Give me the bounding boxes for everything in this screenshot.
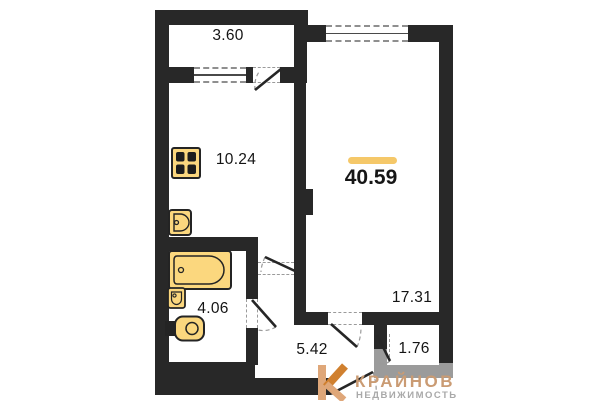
wall-living-bottom-left [294, 312, 328, 325]
total-area-accent-bar [348, 157, 397, 164]
total-area-label: 40.59 [345, 166, 398, 190]
living-room-area-label: 17.31 [392, 289, 432, 307]
balcony-door-opening [253, 67, 280, 83]
hallway-area-label: 5.42 [296, 341, 327, 359]
kitchen-sink-icon [168, 209, 192, 236]
bathroom-area-label: 4.06 [197, 300, 228, 318]
wall-bottom-left-block [155, 362, 255, 395]
wall-living-top-left [307, 25, 326, 42]
wall-living-bottom-right [362, 312, 447, 325]
brand-logo-icon [317, 361, 351, 401]
brand-tagline: НЕДВИЖИМОСТЬ [356, 390, 458, 401]
balcony-area-label: 3.60 [212, 27, 243, 45]
wall-left [155, 10, 169, 367]
wall-bathroom-right-upper [246, 237, 258, 299]
window-pane [326, 33, 408, 35]
toilet-icon [165, 315, 207, 342]
floor-plan: 3.60 10.24 17.31 4.06 5.42 1.76 40.59 КР… [0, 0, 605, 403]
living-door-arc [357, 327, 361, 347]
washbasin-icon [167, 287, 186, 309]
storage-door-swing-line [389, 334, 390, 362]
living-room-window [326, 25, 408, 42]
wall-pilaster [294, 189, 313, 215]
bathroom-door-opening [246, 299, 258, 328]
wall-storage-door-post [374, 325, 387, 349]
stove-icon [171, 147, 201, 179]
kitchen-area-label: 10.24 [216, 151, 256, 169]
storage-area-label: 1.76 [398, 340, 429, 358]
wall-bathroom-right-lower [246, 328, 258, 365]
wall-bathroom-top [155, 237, 258, 251]
wall-top-balcony [155, 10, 308, 25]
window-pane [194, 74, 246, 76]
brand-name: КРАЙНОВ [355, 372, 455, 392]
living-door-leaf [331, 324, 357, 347]
bathtub-icon [168, 250, 232, 290]
balcony-window [194, 67, 246, 83]
wall-balcony-kitchen-right [280, 67, 307, 83]
kitchen-door-opening [258, 262, 294, 275]
living-door-opening [328, 312, 362, 325]
bathroom-door-arc [258, 327, 276, 331]
wall-balcony-kitchen-left [155, 67, 194, 83]
